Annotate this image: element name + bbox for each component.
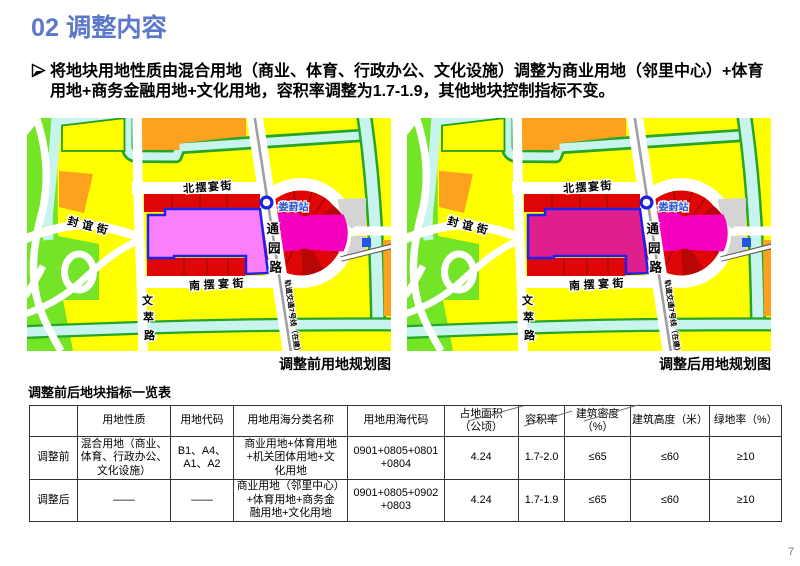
- svg-text:娄葑站: 娄葑站: [279, 201, 309, 214]
- svg-text:娄葑站: 娄葑站: [659, 201, 689, 214]
